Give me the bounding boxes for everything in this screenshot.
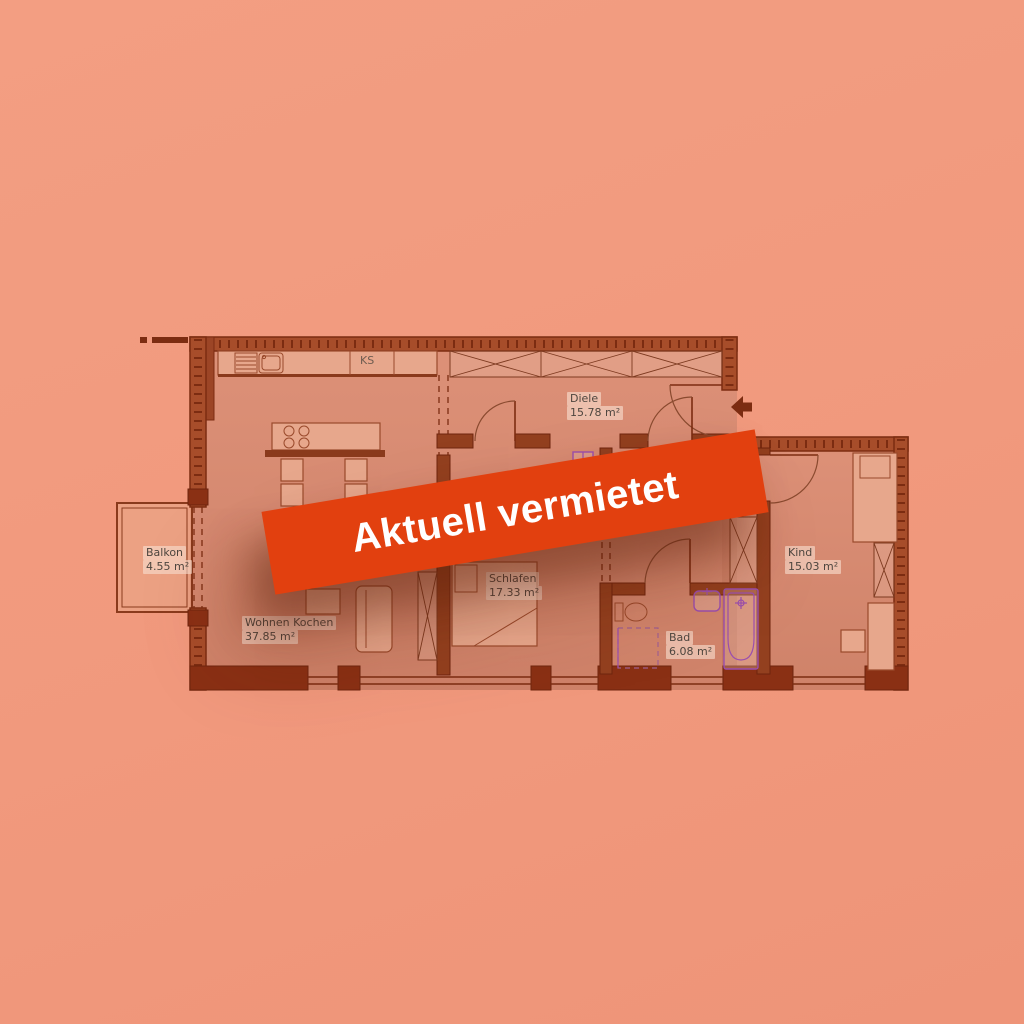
bottom-wall-corner-block (190, 666, 308, 690)
room-name: Schlafen (486, 572, 539, 586)
room-label-bad: Bad 6.08 m² (666, 631, 715, 659)
room-name: Bad (666, 631, 693, 645)
window-pier (531, 666, 551, 690)
room-name: Balkon (143, 546, 186, 560)
wall-diele-schlafen (515, 434, 550, 448)
wall-kind-bad (757, 501, 770, 674)
cooktop-counter (272, 423, 380, 450)
sofa (356, 586, 392, 652)
wall-diele-schlafen (437, 434, 473, 448)
side-table (841, 630, 865, 652)
wall-diele-corridor (620, 434, 648, 448)
room-area: 37.85 m² (242, 630, 298, 644)
room-area: 15.03 m² (785, 560, 841, 574)
base-cabinet (281, 459, 303, 481)
room-area: 17.33 m² (486, 586, 542, 600)
room-label-schlafen: Schlafen 17.33 m² (486, 572, 542, 600)
room-label-kind: Kind 15.03 m² (785, 546, 841, 574)
kind-wall-stub (757, 448, 770, 455)
room-label-balkon: Balkon 4.55 m² (143, 546, 192, 574)
room-name: Diele (567, 392, 601, 406)
wall-continuation-dot (140, 337, 147, 343)
balcony-wall-stub-top (188, 489, 208, 505)
room-name: Wohnen Kochen (242, 616, 336, 630)
balcony-wall-stub-bottom (188, 610, 208, 626)
base-cabinet (281, 484, 303, 506)
right-wall-entrance-side (722, 337, 737, 390)
cabinet (868, 603, 894, 670)
room-label-diele: Diele 15.78 m² (567, 392, 623, 420)
room-name: Kind (785, 546, 815, 560)
coffee-table (306, 589, 340, 614)
cooktop-edge (265, 450, 385, 457)
wall-continuation-marker (152, 337, 188, 343)
window-pier (338, 666, 360, 690)
room-area: 15.78 m² (567, 406, 623, 420)
kitchen-counter (218, 351, 437, 375)
bad-left-wall (600, 583, 612, 674)
bad-top-wall (612, 583, 645, 595)
base-cabinet (345, 459, 367, 481)
room-area: 6.08 m² (666, 645, 715, 659)
fridge-label: KS (360, 354, 374, 367)
room-area: 4.55 m² (143, 560, 192, 574)
room-label-wohnen-kochen: Wohnen Kochen 37.85 m² (242, 616, 336, 644)
counter-edge (218, 374, 437, 377)
screenshot-canvas: Diele 15.78 m² Balkon 4.55 m² Wohnen Koc… (0, 0, 1024, 1024)
